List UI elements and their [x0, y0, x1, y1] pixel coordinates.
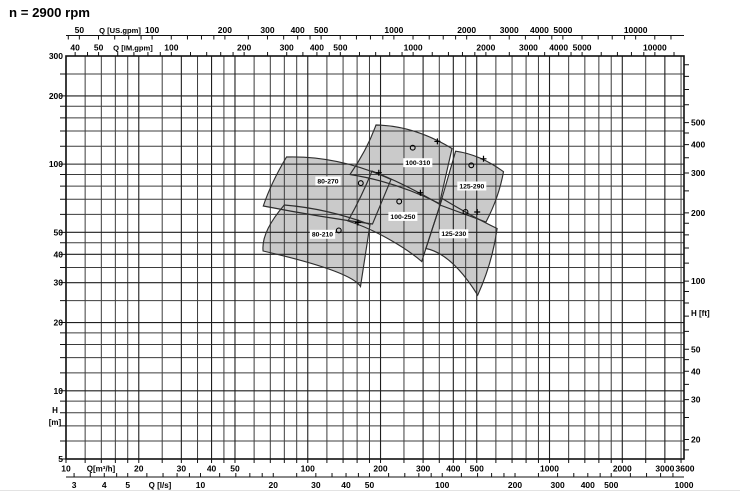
svg-text:1000: 1000 — [404, 43, 423, 53]
svg-text:3: 3 — [72, 480, 77, 490]
svg-text:4000: 4000 — [549, 43, 568, 53]
svg-text:2000: 2000 — [457, 25, 476, 35]
svg-text:3000: 3000 — [655, 464, 674, 474]
svg-text:5000: 5000 — [553, 25, 572, 35]
svg-text:125-290: 125-290 — [459, 183, 484, 190]
svg-text:200: 200 — [218, 25, 232, 35]
svg-text:200: 200 — [508, 480, 522, 490]
svg-text:Q [US.gpm]: Q [US.gpm] — [99, 26, 141, 35]
svg-text:40: 40 — [341, 480, 351, 490]
svg-text:4: 4 — [102, 480, 107, 490]
svg-text:40: 40 — [207, 464, 217, 474]
svg-text:20: 20 — [54, 318, 64, 328]
svg-text:40: 40 — [54, 249, 64, 259]
svg-text:H: H — [52, 406, 58, 415]
svg-text:400: 400 — [310, 43, 324, 53]
svg-text:200: 200 — [237, 43, 251, 53]
svg-text:100: 100 — [691, 276, 705, 286]
svg-text:300: 300 — [416, 464, 430, 474]
svg-text:Q[m³/h]: Q[m³/h] — [87, 465, 116, 474]
svg-text:100: 100 — [301, 464, 315, 474]
svg-text:500: 500 — [604, 480, 618, 490]
svg-text:5: 5 — [125, 480, 130, 490]
svg-text:Q [l/s]: Q [l/s] — [149, 481, 172, 490]
svg-text:100: 100 — [435, 480, 449, 490]
svg-text:300: 300 — [280, 43, 294, 53]
svg-text:100: 100 — [145, 25, 159, 35]
svg-text:500: 500 — [470, 464, 484, 474]
svg-text:100-250: 100-250 — [390, 214, 415, 221]
svg-text:H [ft]: H [ft] — [691, 309, 710, 318]
svg-text:500: 500 — [314, 25, 328, 35]
svg-text:200: 200 — [49, 91, 63, 101]
svg-text:3000: 3000 — [519, 43, 538, 53]
svg-text:400: 400 — [691, 140, 705, 150]
svg-text:Q [IM.gpm]: Q [IM.gpm] — [113, 44, 153, 53]
svg-text:500: 500 — [333, 43, 347, 53]
svg-text:100: 100 — [49, 159, 63, 169]
svg-text:125-230: 125-230 — [441, 231, 466, 238]
svg-text:300: 300 — [260, 25, 274, 35]
svg-text:500: 500 — [691, 118, 705, 128]
svg-text:10000: 10000 — [643, 43, 667, 53]
svg-text:50: 50 — [75, 25, 85, 35]
svg-text:50: 50 — [54, 227, 64, 237]
svg-text:400: 400 — [291, 25, 305, 35]
svg-text:20: 20 — [691, 434, 701, 444]
svg-text:50: 50 — [365, 480, 375, 490]
svg-text:300: 300 — [691, 168, 705, 178]
svg-text:20: 20 — [134, 464, 144, 474]
svg-text:[m]: [m] — [49, 418, 62, 427]
svg-text:30: 30 — [691, 395, 701, 405]
svg-text:10: 10 — [54, 386, 64, 396]
svg-text:30: 30 — [311, 480, 321, 490]
svg-text:300: 300 — [49, 51, 63, 61]
svg-text:30: 30 — [177, 464, 187, 474]
svg-text:2000: 2000 — [613, 464, 632, 474]
svg-text:80-210: 80-210 — [312, 232, 333, 239]
svg-text:5: 5 — [58, 454, 63, 464]
svg-text:300: 300 — [550, 480, 564, 490]
svg-text:50: 50 — [94, 43, 104, 53]
svg-text:20: 20 — [269, 480, 279, 490]
svg-text:40: 40 — [691, 366, 701, 376]
svg-text:50: 50 — [230, 464, 240, 474]
svg-text:10: 10 — [196, 480, 206, 490]
svg-text:200: 200 — [691, 208, 705, 218]
svg-text:100-310: 100-310 — [405, 160, 430, 167]
svg-text:4000: 4000 — [530, 25, 549, 35]
svg-text:400: 400 — [446, 464, 460, 474]
svg-text:1000: 1000 — [540, 464, 559, 474]
svg-text:10: 10 — [61, 464, 71, 474]
svg-text:1000: 1000 — [675, 480, 694, 490]
svg-text:80-270: 80-270 — [317, 178, 338, 185]
svg-text:3600: 3600 — [676, 464, 695, 474]
svg-text:50: 50 — [691, 344, 701, 354]
svg-text:5000: 5000 — [573, 43, 592, 53]
svg-text:100: 100 — [164, 43, 178, 53]
svg-text:200: 200 — [373, 464, 387, 474]
svg-text:400: 400 — [581, 480, 595, 490]
svg-text:n = 2900 rpm: n = 2900 rpm — [9, 5, 90, 20]
svg-text:40: 40 — [70, 43, 80, 53]
svg-text:10000: 10000 — [624, 25, 648, 35]
svg-text:3000: 3000 — [500, 25, 519, 35]
svg-text:1000: 1000 — [384, 25, 403, 35]
svg-text:2000: 2000 — [476, 43, 495, 53]
svg-text:30: 30 — [54, 278, 64, 288]
